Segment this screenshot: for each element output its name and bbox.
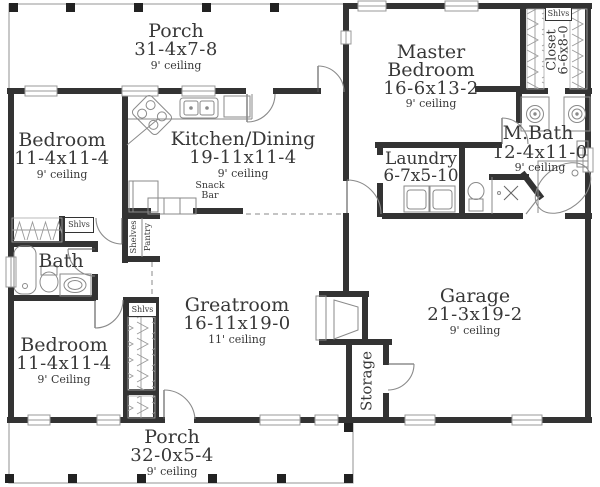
master-bedroom-dims: 16-6x13-2 — [383, 80, 479, 98]
porch-bottom-dims: 32-0x5-4 — [130, 447, 214, 465]
master-bedroom-ceiling: 9' ceiling — [406, 98, 457, 109]
porch-top-ceiling: 9' ceiling — [151, 60, 202, 71]
bedroom2-dims: 11-4x11-4 — [16, 355, 112, 373]
master-closet-shelf-label: Shlvs — [545, 7, 572, 21]
greatroom-ceiling: 11' ceiling — [208, 334, 266, 345]
master-bath-dims: 12-4x11-0 — [492, 144, 588, 162]
bedroom1-ceiling: 9' ceiling — [37, 169, 88, 180]
floorplan-drawing — [0, 0, 600, 487]
bath-name: Bath — [38, 252, 83, 271]
ceiling-break-lines — [152, 214, 343, 297]
porch-top-dims: 31-4x7-8 — [134, 41, 218, 59]
bedroom2-ceiling: 9' Ceiling — [37, 374, 90, 385]
bedroom1-closet-shelf-label: Shlvs — [64, 217, 94, 233]
master-bath-ceiling: 9' ceiling — [515, 162, 566, 173]
storage-name: Storage — [360, 351, 375, 411]
bedroom1-dims: 11-4x11-4 — [14, 150, 110, 168]
snack-bar-label-2: Bar — [201, 191, 218, 201]
garage-ceiling: 9' ceiling — [450, 325, 501, 336]
master-closet-dims: 6-6x8-0 — [558, 25, 571, 74]
pantry-shelves-label: Shelves — [130, 220, 139, 253]
greatroom-dims: 16-11x19-0 — [183, 315, 290, 333]
bedroom2-closet-shelf-label: Shlvs — [128, 302, 157, 317]
kitchen-dining-ceiling: 9' ceiling — [218, 168, 269, 179]
kitchen-dining-dims: 19-11x11-4 — [189, 149, 296, 167]
master-bath-name: M.Bath — [503, 124, 574, 143]
floor-plan: Porch 31-4x7-8 9' ceiling Master Bedroom… — [0, 0, 600, 487]
laundry-dims: 6-7x5-10 — [383, 168, 458, 185]
pantry-label: Pantry — [144, 223, 153, 251]
garage-dims: 21-3x19-2 — [427, 306, 523, 324]
porch-bottom-ceiling: 9' ceiling — [147, 466, 198, 477]
